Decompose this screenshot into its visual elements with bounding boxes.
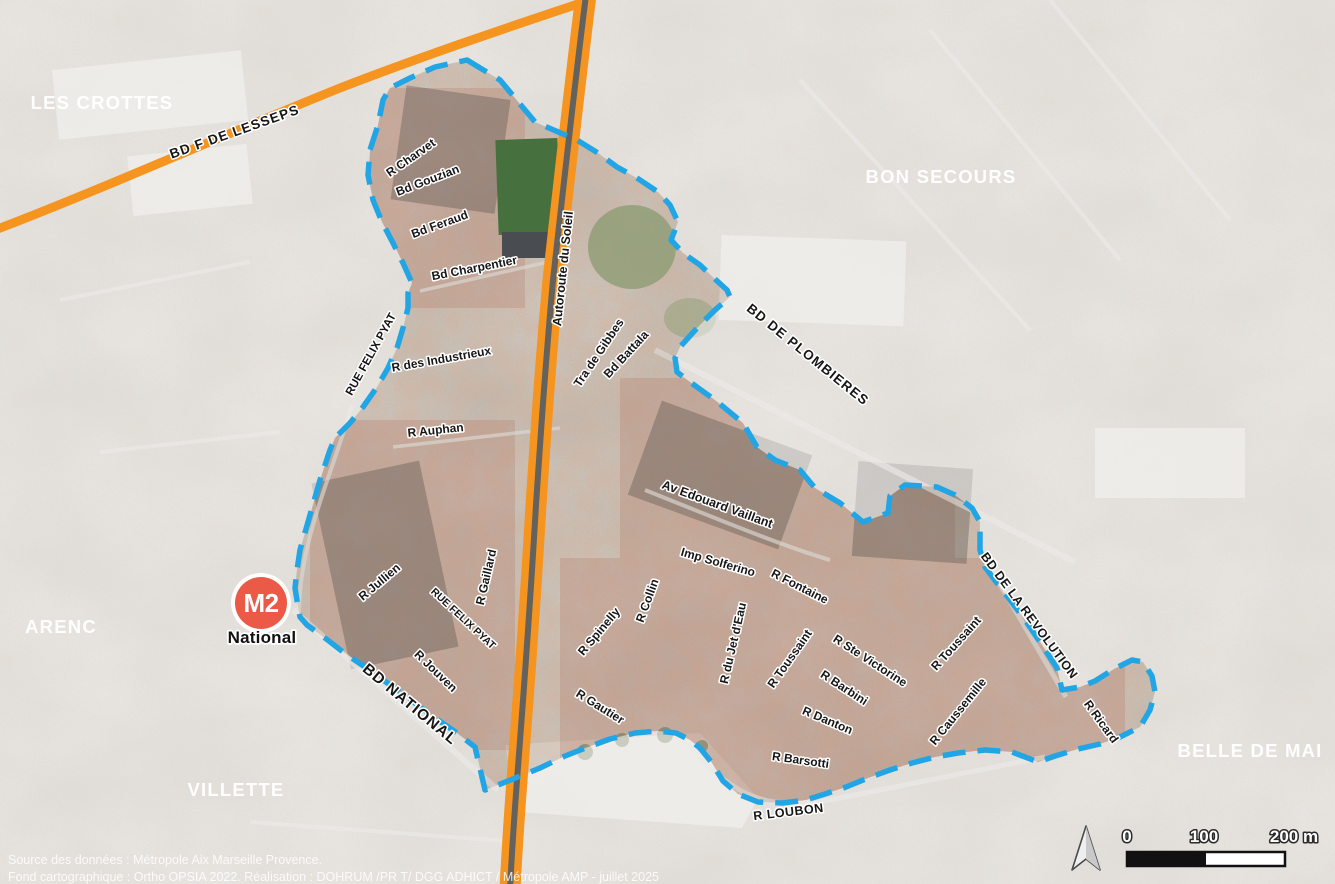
credits-line2: Fond cartographique : Ortho OPSIA 2022. …	[8, 870, 659, 884]
metro-station-name: National	[228, 628, 297, 647]
district-label: ARENC	[25, 616, 97, 637]
scale-tick-200: 200 m	[1270, 827, 1318, 846]
outside-wash	[0, 0, 1335, 884]
district-label: BELLE DE MAI	[1178, 740, 1323, 761]
scale-bar-fill	[1128, 853, 1206, 865]
map-canvas: LES CROTTES BON SECOURS ARENC VILLETTE B…	[0, 0, 1335, 884]
aerial-map: LES CROTTES BON SECOURS ARENC VILLETTE B…	[0, 0, 1335, 884]
credits-line1: Source des données : Métropole Aix Marse…	[8, 853, 322, 867]
district-label: VILLETTE	[188, 779, 285, 800]
scale-tick-0: 0	[1122, 827, 1131, 846]
scale-tick-100: 100	[1190, 827, 1218, 846]
district-label: BON SECOURS	[866, 166, 1017, 187]
metro-line-label: M2	[243, 588, 278, 618]
district-label: LES CROTTES	[31, 92, 174, 113]
